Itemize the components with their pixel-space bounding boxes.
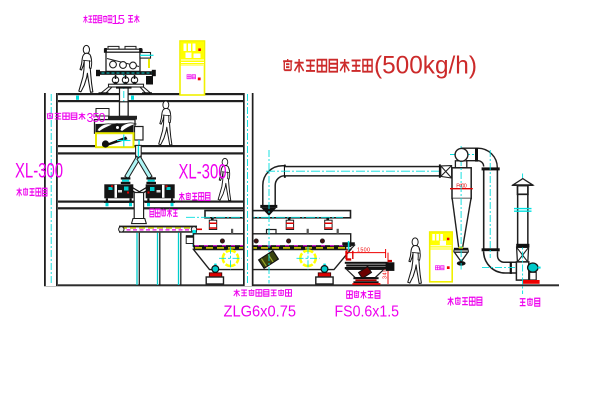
- svg-text:XL-300: XL-300: [15, 160, 63, 183]
- svg-text:1.5: 1.5: [112, 12, 126, 27]
- svg-text:350: 350: [87, 111, 106, 125]
- svg-text:(500kg/h): (500kg/h): [374, 51, 477, 79]
- svg-text:ZLG6x0.75: ZLG6x0.75: [224, 304, 297, 321]
- svg-text:1500: 1500: [357, 248, 370, 254]
- svg-text:XL-300: XL-300: [179, 161, 227, 184]
- svg-text:FS0.6x1.5: FS0.6x1.5: [335, 304, 400, 321]
